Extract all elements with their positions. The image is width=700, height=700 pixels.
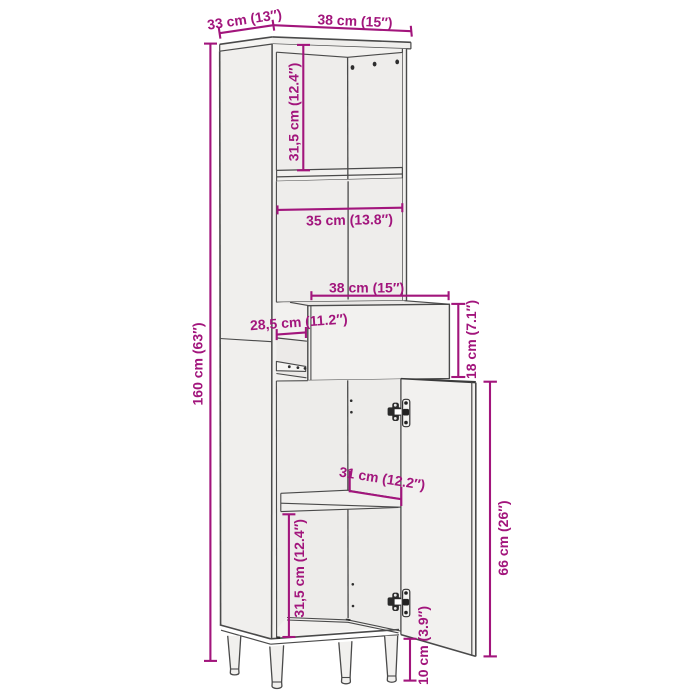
- svg-text:31,5 cm (12.4″): 31,5 cm (12.4″): [291, 519, 307, 618]
- svg-text:10 cm (3.9″): 10 cm (3.9″): [415, 606, 431, 685]
- svg-text:31,5 cm (12.4″): 31,5 cm (12.4″): [286, 63, 302, 162]
- svg-text:38 cm (15″): 38 cm (15″): [317, 11, 393, 30]
- svg-text:18 cm (7.1″): 18 cm (7.1″): [463, 300, 479, 379]
- svg-text:35 cm (13.8″): 35 cm (13.8″): [306, 211, 393, 229]
- svg-text:38 cm (15″): 38 cm (15″): [329, 280, 404, 296]
- svg-text:160 cm (63″): 160 cm (63″): [190, 323, 206, 406]
- svg-text:66 cm (26″): 66 cm (26″): [495, 500, 511, 575]
